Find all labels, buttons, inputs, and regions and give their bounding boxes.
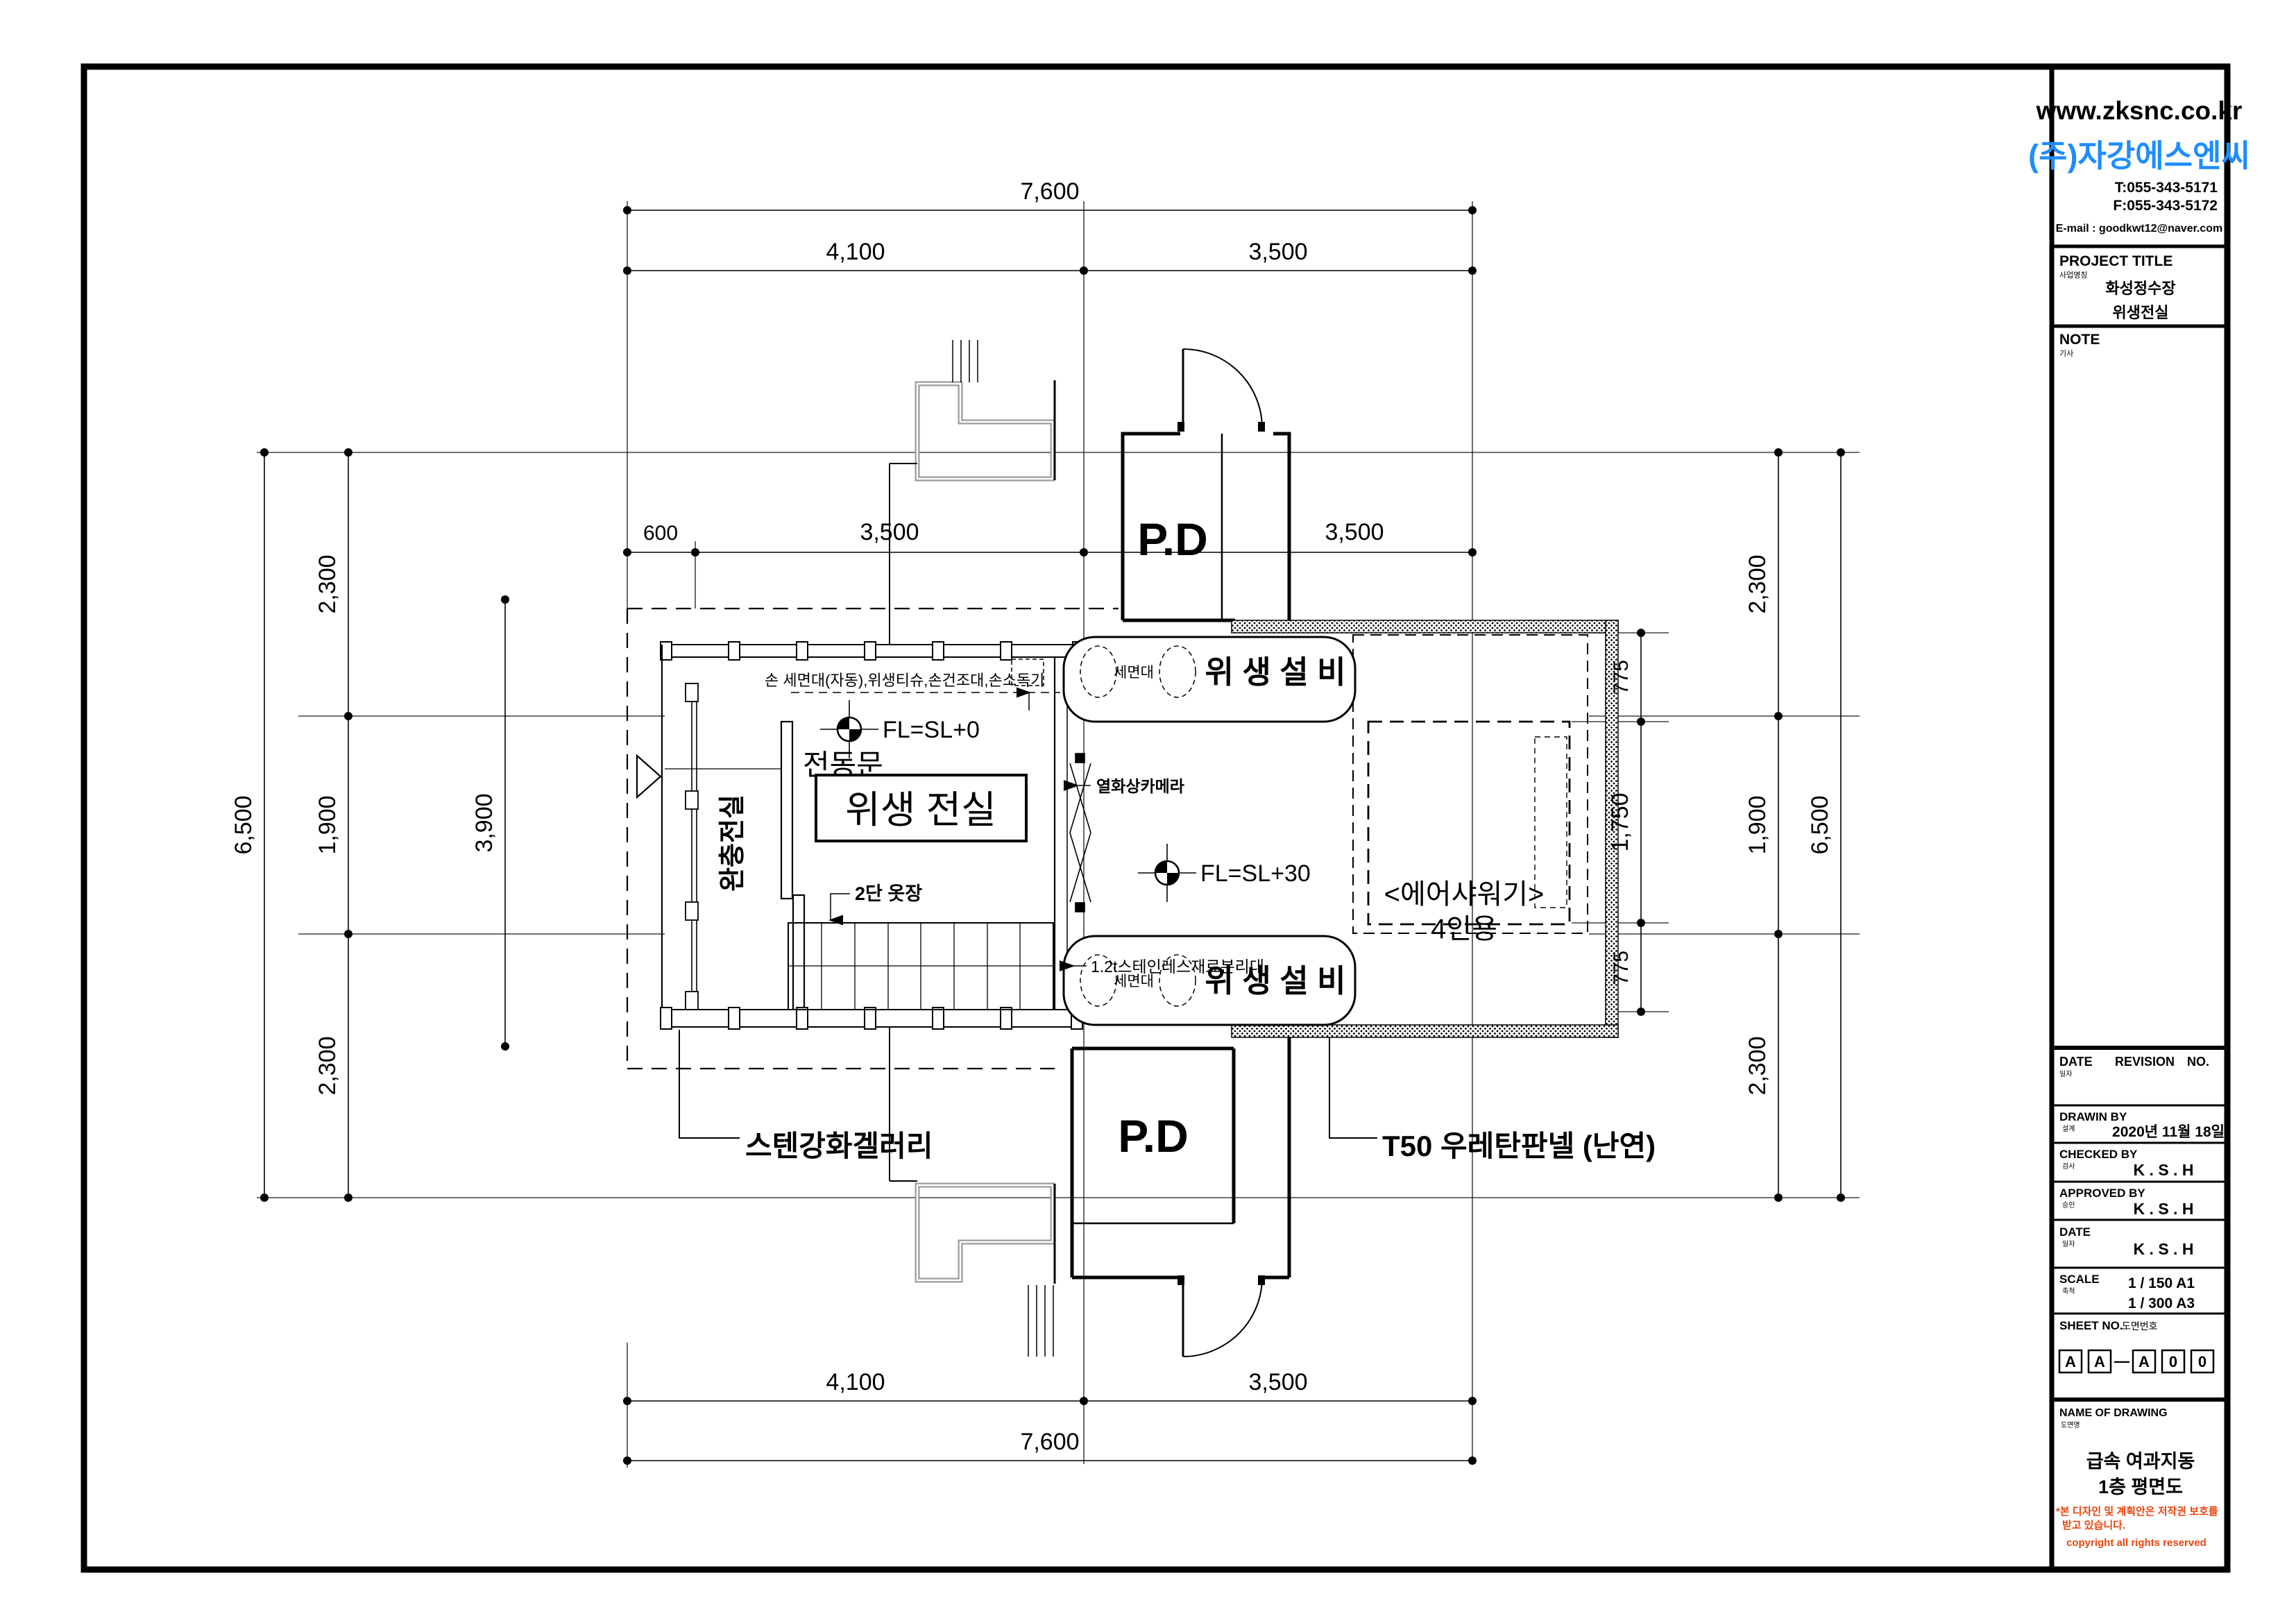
copyright-line-2: 받고 있습니다. [2062,1519,2125,1531]
sheet-no-sub: 도면번호 [2122,1320,2158,1332]
drawn-by-sub: 설계 [2062,1125,2075,1133]
scale-a1: 1 / 150 A1 [2128,1275,2195,1291]
label-thermal-camera: 열화상카메라 [1096,777,1184,795]
sheet-no-char-4: 0 [2169,1353,2177,1370]
dim-top-right: 3,500 [1248,239,1307,265]
project-name-1: 화성정수장 [2105,280,2175,297]
dim-right-a: 2,300 [1744,554,1771,613]
dimension-labels: 7,600 4,100 3,500 600 3,500 3,500 4,100 … [230,178,1833,1455]
drawing-name-label: NAME OF DRAWING [2059,1407,2168,1419]
upper-pd-block [890,340,1289,645]
company-tel: T:055-343-5171 [2115,180,2218,196]
label-gallery: 스텐강화겔러리 [745,1130,933,1162]
wardrobe-lockers [788,923,1053,1010]
checked-by-sub: 검사 [2062,1162,2075,1171]
dimension-lines [264,210,1841,1461]
door-arc-top [1183,349,1262,428]
label-level-main: FL=SL+0 [883,717,980,743]
scale-a3: 1 / 300 A3 [2128,1295,2195,1311]
approved-by-value: K . S . H [2134,1200,2194,1218]
company-name: (주)자강에스엔씨 [2028,138,2250,173]
label-equipment-note: 손 세면대(자동),위생티슈,손건조대,손소독기 [765,672,1044,689]
revision-date-sub: 일자 [2059,1070,2072,1078]
label-level-corridor: FL=SL+30 [1200,860,1311,887]
plan-labels: 손 세면대(자동),위생티슈,손건조대,손소독기 전동문 완충전실 위생 전실 … [718,513,1656,1162]
dim-bottom-total: 7,600 [1020,1429,1079,1455]
door-arc-bottom [1183,1277,1262,1357]
dim-top-total: 7,600 [1020,178,1079,205]
label-washstand-top: 세면대 [1114,665,1154,681]
checked-by-value: K . S . H [2134,1161,2194,1179]
date-row-value: K . S . H [2134,1240,2194,1258]
x-brace-door [1070,754,1091,912]
dim-right-b: 1,900 [1744,795,1771,854]
company-fax: F:055-343-5172 [2113,198,2218,214]
label-air-shower: <에어샤워기> [1384,879,1545,910]
drawn-by-value: 2020년 11월 18일 [2112,1124,2225,1140]
dim-left-overall: 6,500 [230,795,257,854]
direction-triangle [637,756,661,797]
drawing-sheet: 7,600 4,100 3,500 600 3,500 3,500 4,100 … [0,0,2296,1623]
company-email: E-mail : goodkwt12@naver.com [2056,223,2223,235]
dim-left-a: 2,300 [314,554,341,613]
plan-canvas: 7,600 4,100 3,500 600 3,500 3,500 4,100 … [0,0,2296,1623]
lower-pd-block [890,1027,1289,1357]
sheet-no-boxes: A A — A 0 0 [2059,1350,2213,1373]
dim-shower-mid: 1,750 [1607,792,1633,851]
label-washstand-bottom: 세면대 [1114,974,1154,989]
level-symbol-corridor [1138,844,1196,902]
dim-row2-b: 3,500 [860,519,919,545]
date-row-label: DATE [2059,1225,2091,1239]
revision-no-label: NO. [2187,1055,2209,1069]
dim-bottom-right: 3,500 [1248,1369,1307,1395]
dim-right-c: 2,300 [1744,1036,1771,1095]
note-label: NOTE [2059,332,2100,348]
label-air-shower-capacity: 4인용 [1431,914,1497,944]
project-name-2: 위생전실 [2113,304,2169,321]
project-title-label: PROJECT TITLE [2059,253,2172,269]
label-pd-top: P.D [1137,513,1208,565]
dim-right-overall: 6,500 [1807,795,1833,854]
dim-shower-top: 775 [1610,660,1633,695]
title-block: www.zksnc.co.kr (주)자강에스엔씨 T:055-343-5171… [2028,96,2250,1549]
sheet-no-label: SHEET NO. [2059,1319,2123,1332]
sheet-no-char-2: A [2094,1353,2105,1370]
label-sanitary-top: 위 생 설 비 [1205,654,1345,690]
checked-by-label: CHECKED BY [2059,1148,2138,1161]
sheet-border [84,67,2227,1570]
sheet-no-separator: — [2114,1352,2129,1370]
drawn-by-label: DRAWIN BY [2059,1110,2127,1123]
label-urethane-panel: T50 우레탄판넬 (난연) [1382,1130,1656,1162]
project-title-sub: 사업명칭 [2059,271,2087,280]
revision-label: REVISION [2115,1055,2175,1069]
drawing-name-1: 급속 여과지동 [2086,1451,2195,1472]
label-buffer-room: 완충전실 [718,794,747,892]
dim-inner-height: 3,900 [471,793,498,852]
scale-sub: 축척 [2062,1287,2075,1295]
drawing-name-sub: 도면명 [2061,1421,2080,1429]
label-wardrobe: 2단 옷장 [855,883,922,904]
dim-bottom-left: 4,100 [826,1369,885,1395]
label-pd-bottom: P.D [1118,1110,1189,1162]
dim-left-b: 1,900 [314,795,341,854]
copyright-line-1: *본 디자인 및 계획안은 저작권 보호를 [2056,1505,2218,1518]
label-main-room: 위생 전실 [845,788,996,831]
sheet-no-char-5: 0 [2198,1353,2206,1370]
approved-by-label: APPROVED BY [2059,1187,2145,1200]
revision-date-label: DATE [2059,1055,2093,1069]
date-row-sub: 일자 [2062,1240,2075,1248]
sheet-no-char-1: A [2065,1353,2076,1370]
label-sanitary-bottom: 위 생 설 비 [1205,963,1345,999]
scale-label: SCALE [2059,1273,2100,1286]
drawing-name-2: 1층 평면도 [2098,1477,2183,1497]
dim-shower-bottom: 775 [1610,951,1633,985]
note-sub: 기사 [2059,349,2073,358]
company-website: www.zksnc.co.kr [2036,96,2243,125]
dim-top-left: 4,100 [826,239,885,265]
copyright-line-3: copyright all rights reserved [2066,1537,2206,1549]
dim-row2-a: 600 [643,522,678,545]
sheet-no-char-3: A [2138,1353,2150,1370]
electric-door-leaf [781,722,792,899]
dim-left-c: 2,300 [314,1036,341,1095]
dim-row2-c: 3,500 [1325,519,1384,545]
approved-by-sub: 승인 [2062,1201,2075,1209]
